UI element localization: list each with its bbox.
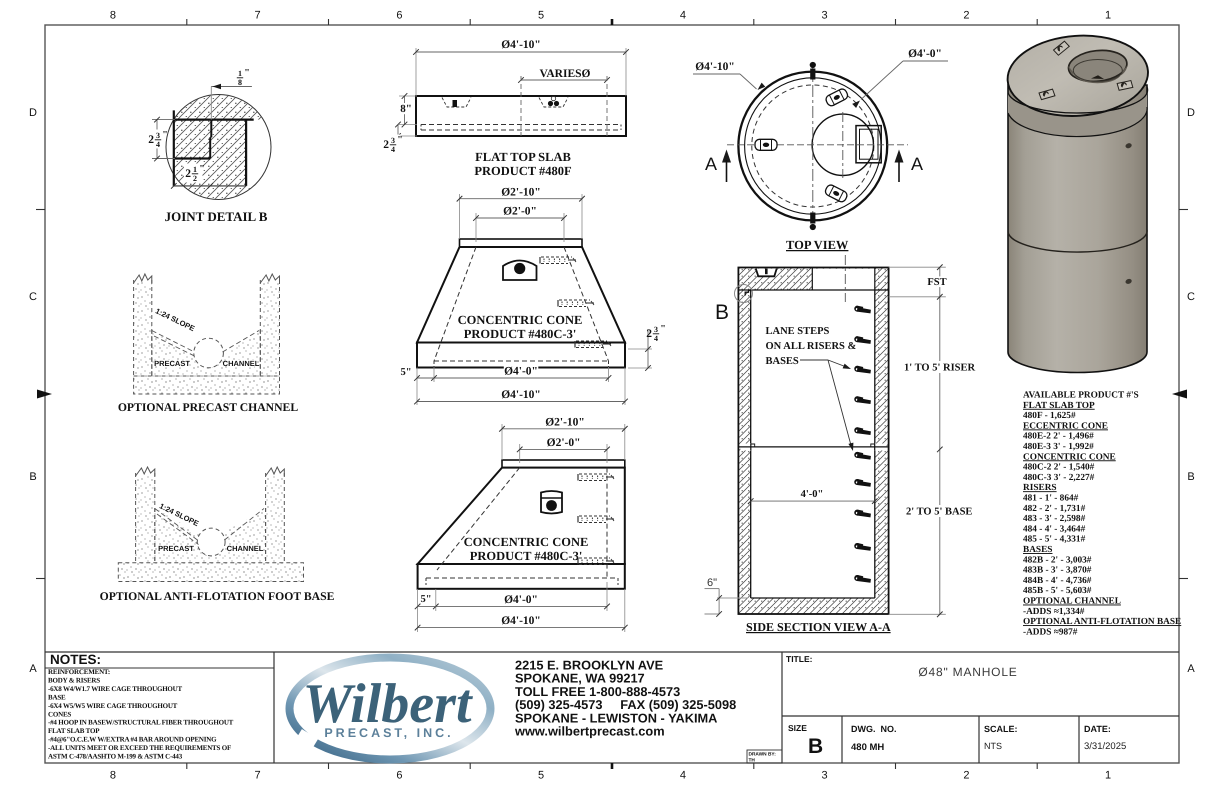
- svg-text:BASE: BASE: [48, 693, 66, 701]
- svg-text:DWG. NO.: DWG. NO.: [851, 724, 897, 734]
- svg-text:ECCENTRIC CONE: ECCENTRIC CONE: [1023, 421, 1108, 431]
- svg-text:ASTM C-478/AASHTO M-199 & ASTM: ASTM C-478/AASHTO M-199 & ASTM C-443: [48, 753, 183, 761]
- svg-text:7: 7: [255, 10, 261, 22]
- svg-text:4: 4: [680, 770, 686, 782]
- svg-text:SIZE: SIZE: [788, 723, 807, 733]
- svg-text:-ADDS ≈1,334#: -ADDS ≈1,334#: [1023, 607, 1085, 617]
- svg-text:Ø4'-0": Ø4'-0": [504, 366, 538, 378]
- svg-text:": ": [660, 324, 666, 335]
- svg-text:6: 6: [396, 770, 402, 782]
- svg-text:CONCENTRIC CONE: CONCENTRIC CONE: [464, 535, 589, 549]
- svg-text:2' TO 5' BASE: 2' TO 5' BASE: [906, 507, 972, 518]
- svg-text:NTS: NTS: [984, 741, 1002, 751]
- svg-text:": ": [397, 135, 403, 146]
- svg-text:Ø4'-10": Ø4'-10": [501, 389, 541, 401]
- svg-text:5": 5": [420, 594, 431, 605]
- svg-text:Ø4'-0": Ø4'-0": [504, 594, 538, 606]
- svg-text:2: 2: [963, 770, 969, 782]
- svg-text:B: B: [808, 735, 823, 758]
- svg-text:3: 3: [822, 770, 828, 782]
- svg-text:REINFORCEMENT:: REINFORCEMENT:: [48, 668, 110, 676]
- svg-text:5: 5: [538, 770, 544, 782]
- svg-text:480E-2 2' - 1,496#: 480E-2 2' - 1,496#: [1023, 432, 1094, 442]
- svg-text:Ø4'-10": Ø4'-10": [695, 61, 735, 73]
- svg-text:7: 7: [255, 770, 261, 782]
- svg-text:485 - 5' - 4,331#: 485 - 5' - 4,331#: [1023, 535, 1086, 545]
- svg-text:CONCENTRIC CONE: CONCENTRIC CONE: [1023, 452, 1116, 462]
- svg-text:TH: TH: [749, 758, 756, 764]
- svg-text:FLAT SLAB TOP: FLAT SLAB TOP: [48, 727, 100, 735]
- svg-text:480C-2 2' - 1,540#: 480C-2 2' - 1,540#: [1023, 463, 1095, 473]
- svg-text:ON ALL RISERS &: ON ALL RISERS &: [766, 341, 857, 352]
- svg-text:CHANNEL: CHANNEL: [223, 359, 260, 368]
- svg-text:2: 2: [185, 168, 191, 180]
- svg-text:OPTIONAL ANTI-FLOTATION FOOT B: OPTIONAL ANTI-FLOTATION FOOT BASE: [100, 590, 335, 603]
- svg-text:Ø2'-0": Ø2'-0": [503, 206, 537, 218]
- svg-text:1' TO 5' RISER: 1' TO 5' RISER: [904, 363, 976, 374]
- svg-text:2: 2: [646, 328, 652, 340]
- svg-text:-#4@6"O.C.E.W W/EXTRA #4 BAR A: -#4@6"O.C.E.W W/EXTRA #4 BAR AROUND OPEN…: [48, 736, 217, 744]
- svg-text:PRODUCT #480C-3': PRODUCT #480C-3': [470, 549, 583, 563]
- svg-text:3: 3: [156, 131, 160, 140]
- svg-text:5": 5": [400, 367, 411, 378]
- svg-text:Ø48" MANHOLE: Ø48" MANHOLE: [918, 665, 1017, 679]
- svg-text:2: 2: [963, 10, 969, 22]
- svg-text:480 MH: 480 MH: [851, 742, 884, 753]
- svg-text:-6X8 W4/W1.7 WIRE CAGE THROUGH: -6X8 W4/W1.7 WIRE CAGE THROUGHOUT: [48, 685, 183, 693]
- svg-text:TOP VIEW: TOP VIEW: [786, 238, 849, 252]
- svg-text:FST: FST: [927, 277, 946, 288]
- svg-text:B: B: [715, 301, 729, 324]
- svg-text:Ø2'-10": Ø2'-10": [501, 187, 541, 199]
- svg-text:5: 5: [538, 10, 544, 22]
- svg-text:": ": [244, 68, 250, 79]
- svg-text:www.wilbertprecast.com: www.wilbertprecast.com: [514, 724, 665, 739]
- svg-text:BASES: BASES: [766, 356, 799, 367]
- svg-text:C: C: [29, 291, 37, 303]
- svg-text:BODY & RISERS: BODY & RISERS: [48, 677, 100, 685]
- svg-text:PRODUCT #480F: PRODUCT #480F: [474, 164, 572, 178]
- svg-text:OPTIONAL CHANNEL: OPTIONAL CHANNEL: [1023, 597, 1121, 607]
- svg-text:-#4 HOOP IN BASEW/STRUCTURAL F: -#4 HOOP IN BASEW/STRUCTURAL FIBER THROU…: [48, 719, 234, 727]
- svg-text:": ": [199, 164, 205, 175]
- svg-text:481 - 1' - 864#: 481 - 1' - 864#: [1023, 494, 1079, 504]
- svg-text:485B - 5' - 5,603#: 485B - 5' - 5,603#: [1023, 586, 1092, 596]
- svg-text:1: 1: [1105, 770, 1111, 782]
- svg-text:SIDE SECTION VIEW A-A: SIDE SECTION VIEW A-A: [746, 620, 891, 634]
- svg-text:4: 4: [654, 334, 658, 343]
- svg-text:CHANNEL: CHANNEL: [227, 544, 264, 553]
- svg-text:A: A: [29, 663, 37, 675]
- svg-text:B: B: [29, 471, 36, 483]
- svg-text:8: 8: [110, 10, 116, 22]
- svg-text:1: 1: [238, 69, 242, 78]
- svg-text:PRECAST, INC.: PRECAST, INC.: [324, 726, 453, 740]
- svg-text:483B - 3' - 3,870#: 483B - 3' - 3,870#: [1023, 566, 1092, 576]
- svg-text:AVAILABLE PRODUCT #'S: AVAILABLE PRODUCT #'S: [1023, 391, 1139, 401]
- svg-text:JOINT DETAIL B: JOINT DETAIL B: [165, 209, 268, 224]
- svg-text:DATE:: DATE:: [1084, 724, 1111, 734]
- svg-text:VARIESØ: VARIESØ: [540, 68, 591, 80]
- svg-text:480E-3 3' - 1,992#: 480E-3 3' - 1,992#: [1023, 442, 1094, 452]
- svg-text:Ø4'-0": Ø4'-0": [908, 48, 942, 60]
- svg-text:2: 2: [148, 134, 154, 146]
- svg-text:FLAT TOP SLAB: FLAT TOP SLAB: [475, 150, 571, 164]
- svg-text:482 - 2' - 1,731#: 482 - 2' - 1,731#: [1023, 504, 1086, 514]
- svg-text:1: 1: [1105, 10, 1111, 22]
- svg-text:A: A: [705, 154, 717, 174]
- svg-text:": ": [162, 130, 168, 141]
- svg-text:RISERS: RISERS: [1023, 483, 1057, 493]
- svg-text:2: 2: [193, 174, 197, 183]
- svg-text:480C-3 3' - 2,227#: 480C-3 3' - 2,227#: [1023, 473, 1095, 483]
- svg-text:PRODUCT #480C-3': PRODUCT #480C-3': [464, 327, 577, 341]
- svg-text:SCALE:: SCALE:: [984, 724, 1018, 734]
- svg-text:3: 3: [654, 325, 658, 334]
- svg-text:4: 4: [156, 140, 160, 149]
- svg-text:483 - 3' - 2,598#: 483 - 3' - 2,598#: [1023, 514, 1086, 524]
- svg-text:PRECAST: PRECAST: [154, 359, 190, 368]
- svg-text:Ø4'-10": Ø4'-10": [501, 615, 541, 627]
- svg-text:C: C: [1187, 291, 1195, 303]
- svg-text:FLAT SLAB TOP: FLAT SLAB TOP: [1023, 401, 1095, 411]
- svg-text:-6X4 W5/W5 WIRE CAGE THROUGHOU: -6X4 W5/W5 WIRE CAGE THROUGHOUT: [48, 702, 178, 710]
- svg-text:LANE STEPS: LANE STEPS: [766, 326, 830, 337]
- svg-text:480F - 1,625#: 480F - 1,625#: [1023, 411, 1076, 421]
- svg-text:482B - 2' - 3,003#: 482B - 2' - 3,003#: [1023, 555, 1092, 565]
- svg-text:Ø4'-10": Ø4'-10": [501, 39, 541, 51]
- svg-text:484B - 4' - 4,736#: 484B - 4' - 4,736#: [1023, 576, 1092, 586]
- svg-text:D: D: [1187, 107, 1195, 119]
- svg-text:8: 8: [110, 770, 116, 782]
- svg-text:3/31/2025: 3/31/2025: [1084, 741, 1126, 752]
- svg-text:1: 1: [193, 165, 197, 174]
- svg-text:TITLE:: TITLE:: [786, 654, 813, 664]
- svg-text:Ø2'-10": Ø2'-10": [545, 417, 585, 429]
- svg-text:CONCENTRIC CONE: CONCENTRIC CONE: [458, 313, 583, 327]
- svg-text:-ADDS ≈987#: -ADDS ≈987#: [1023, 627, 1078, 637]
- svg-text:-ALL UNITS MEET OR EXCEED THE: -ALL UNITS MEET OR EXCEED THE REQUIREMEN…: [48, 744, 231, 752]
- svg-text:3: 3: [822, 10, 828, 22]
- svg-text:6": 6": [707, 577, 717, 589]
- svg-text:2: 2: [383, 139, 389, 151]
- svg-text:3: 3: [391, 136, 395, 145]
- svg-text:B: B: [1187, 471, 1194, 483]
- svg-text:8: 8: [238, 78, 242, 87]
- svg-text:4: 4: [391, 145, 395, 154]
- svg-text:6: 6: [396, 10, 402, 22]
- svg-text:OPTIONAL PRECAST CHANNEL: OPTIONAL PRECAST CHANNEL: [118, 401, 299, 414]
- svg-text:PRECAST: PRECAST: [158, 544, 194, 553]
- svg-text:DRAWN BY:: DRAWN BY:: [749, 752, 777, 758]
- svg-text:Ø2'-0": Ø2'-0": [547, 437, 581, 449]
- svg-text:NOTES:: NOTES:: [50, 652, 101, 667]
- svg-text:A: A: [1187, 663, 1195, 675]
- svg-text:8": 8": [400, 103, 412, 115]
- svg-text:484 - 4' - 3,464#: 484 - 4' - 3,464#: [1023, 524, 1086, 534]
- svg-text:D: D: [29, 107, 37, 119]
- svg-text:4'-0": 4'-0": [801, 489, 824, 500]
- svg-text:BASES: BASES: [1023, 545, 1052, 555]
- svg-text:4: 4: [680, 10, 686, 22]
- svg-text:OPTIONAL ANTI-FLOTATION BASE: OPTIONAL ANTI-FLOTATION BASE: [1023, 617, 1181, 627]
- svg-text:CONES: CONES: [48, 710, 71, 718]
- svg-text:A: A: [911, 154, 923, 174]
